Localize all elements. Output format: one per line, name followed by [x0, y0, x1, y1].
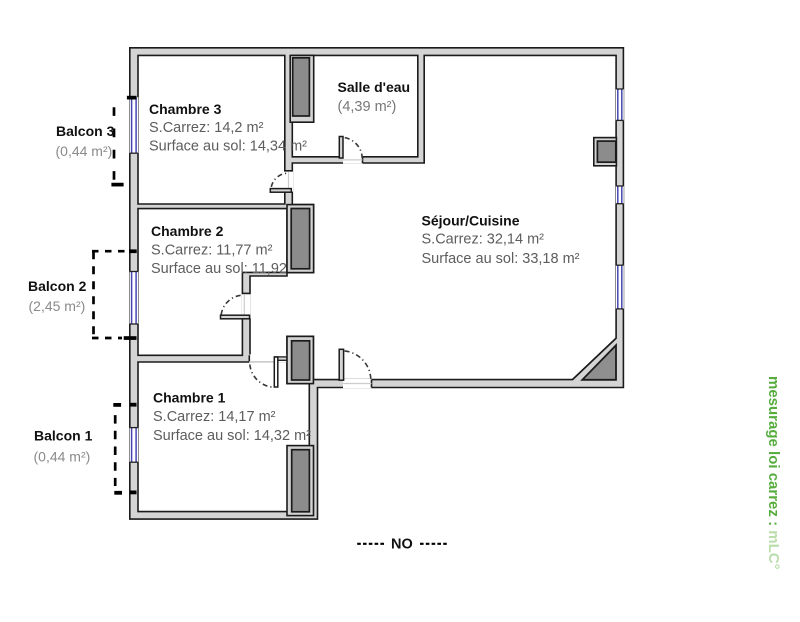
svg-text:mesurage loi carrez : mLC°: mesurage loi carrez : mLC° [765, 376, 782, 570]
svg-text:Surface au sol: 11,92 m²: Surface au sol: 11,92 m² [151, 261, 308, 277]
svg-text:Séjour/Cuisine: Séjour/Cuisine [422, 213, 520, 229]
svg-text:Surface au sol: 14,32 m²: Surface au sol: 14,32 m² [153, 428, 311, 444]
svg-text:S.Carrez: 11,77 m²: S.Carrez: 11,77 m² [151, 242, 273, 258]
svg-text:S.Carrez: 14,17 m²: S.Carrez: 14,17 m² [153, 409, 276, 425]
svg-text:Balcon 2: Balcon 2 [28, 278, 87, 294]
svg-text:S.Carrez: 14,2 m²: S.Carrez: 14,2 m² [149, 120, 264, 136]
svg-text:(0,44 m²): (0,44 m²) [56, 143, 113, 159]
svg-text:Chambre 3: Chambre 3 [149, 101, 222, 117]
svg-text:(0,44 m²): (0,44 m²) [34, 449, 91, 465]
svg-text:Salle d'eau: Salle d'eau [338, 79, 411, 95]
svg-text:Balcon 3: Balcon 3 [56, 123, 115, 139]
svg-text:Balcon 1: Balcon 1 [34, 428, 93, 444]
svg-text:Chambre 1: Chambre 1 [153, 390, 226, 406]
svg-text:S.Carrez: 32,14 m²: S.Carrez: 32,14 m² [422, 232, 545, 248]
svg-text:Chambre 2: Chambre 2 [151, 223, 224, 239]
svg-text:(4,39 m²): (4,39 m²) [338, 99, 397, 115]
svg-text:(2,45 m²): (2,45 m²) [29, 298, 86, 314]
svg-text:NO: NO [391, 536, 413, 552]
svg-text:Surface au sol: 33,18 m²: Surface au sol: 33,18 m² [422, 251, 580, 267]
svg-text:Surface au sol: 14,34 m²: Surface au sol: 14,34 m² [149, 138, 307, 154]
